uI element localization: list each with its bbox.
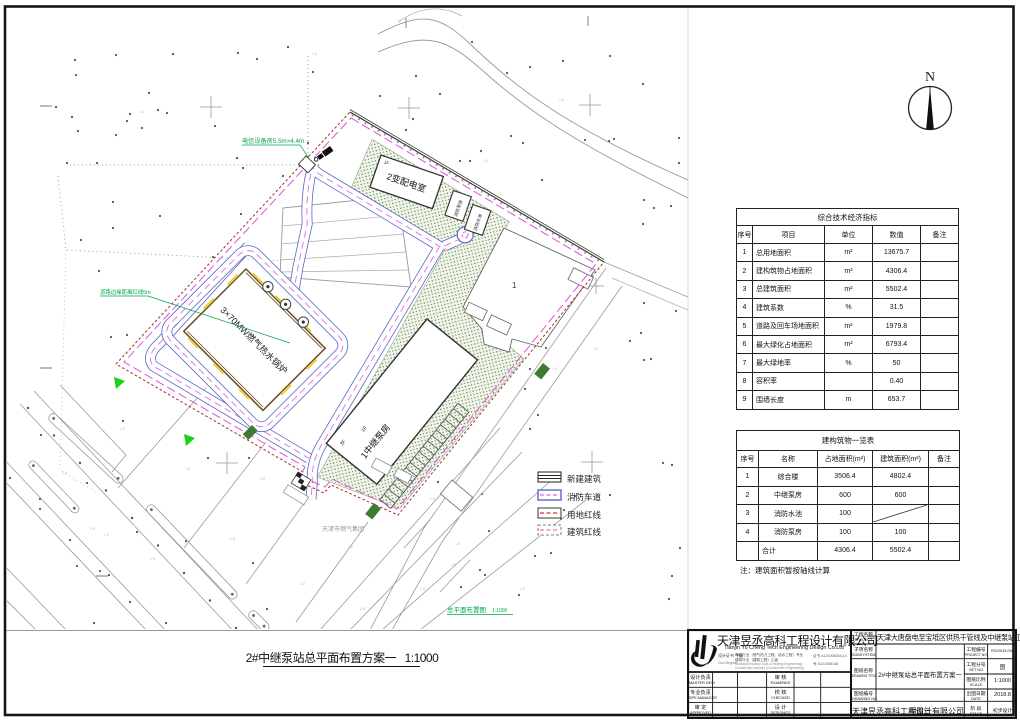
svg-text:1.8: 1.8 bbox=[483, 159, 488, 163]
svg-text:1.8: 1.8 bbox=[312, 52, 317, 56]
svg-text:1.8: 1.8 bbox=[120, 427, 125, 431]
svg-text:1.8: 1.8 bbox=[185, 467, 190, 471]
svg-text:1.8: 1.8 bbox=[230, 537, 235, 541]
svg-text:道路边缘距离红线5m: 道路边缘距离红线5m bbox=[100, 288, 151, 296]
svg-text:消防车道: 消防车道 bbox=[567, 492, 602, 502]
svg-text:1: 1 bbox=[512, 281, 517, 290]
svg-text:天津市燃气集团: 天津市燃气集团 bbox=[322, 525, 364, 533]
svg-text:用地红线: 用地红线 bbox=[567, 510, 602, 520]
svg-text:1.8: 1.8 bbox=[552, 367, 557, 371]
svg-text:新建建筑: 新建建筑 bbox=[567, 474, 602, 484]
svg-text:1.8: 1.8 bbox=[430, 497, 435, 501]
svg-text:N: N bbox=[925, 70, 935, 85]
svg-text:1.8: 1.8 bbox=[593, 347, 598, 351]
svg-text:1.8: 1.8 bbox=[260, 477, 265, 481]
svg-text:总平面布置图: 总平面布置图 bbox=[447, 605, 486, 614]
svg-text:1:1000: 1:1000 bbox=[492, 608, 508, 614]
svg-text:1.8: 1.8 bbox=[559, 98, 564, 102]
svg-text:1.8: 1.8 bbox=[455, 542, 460, 546]
svg-text:1.8: 1.8 bbox=[360, 607, 365, 611]
svg-text:1.8: 1.8 bbox=[420, 587, 425, 591]
svg-text:电信设备房5.5m×4.4m: 电信设备房5.5m×4.4m bbox=[242, 137, 304, 145]
svg-text:1.8: 1.8 bbox=[104, 533, 109, 537]
svg-text:1.8: 1.8 bbox=[300, 582, 305, 586]
svg-text:1.8: 1.8 bbox=[150, 557, 155, 561]
svg-text:建筑红线: 建筑红线 bbox=[567, 527, 602, 537]
svg-text:1.8: 1.8 bbox=[520, 587, 525, 591]
svg-text:1.8: 1.8 bbox=[139, 110, 144, 114]
svg-text:1.8: 1.8 bbox=[90, 527, 95, 531]
